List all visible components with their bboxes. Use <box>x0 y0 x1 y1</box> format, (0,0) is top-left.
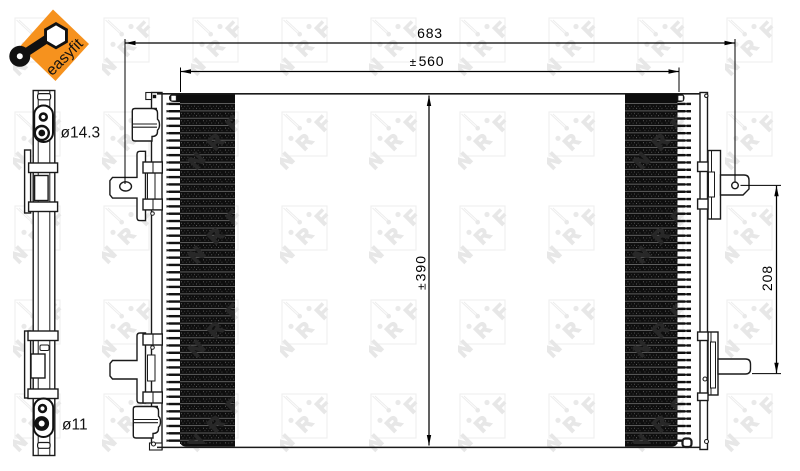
svg-text:683: 683 <box>417 25 443 41</box>
svg-text:208: 208 <box>759 265 775 291</box>
svg-text:±390: ±390 <box>413 255 429 290</box>
svg-text:ø14.3: ø14.3 <box>61 125 101 142</box>
svg-text:ø11: ø11 <box>62 417 88 434</box>
svg-text:±560: ±560 <box>410 53 445 69</box>
